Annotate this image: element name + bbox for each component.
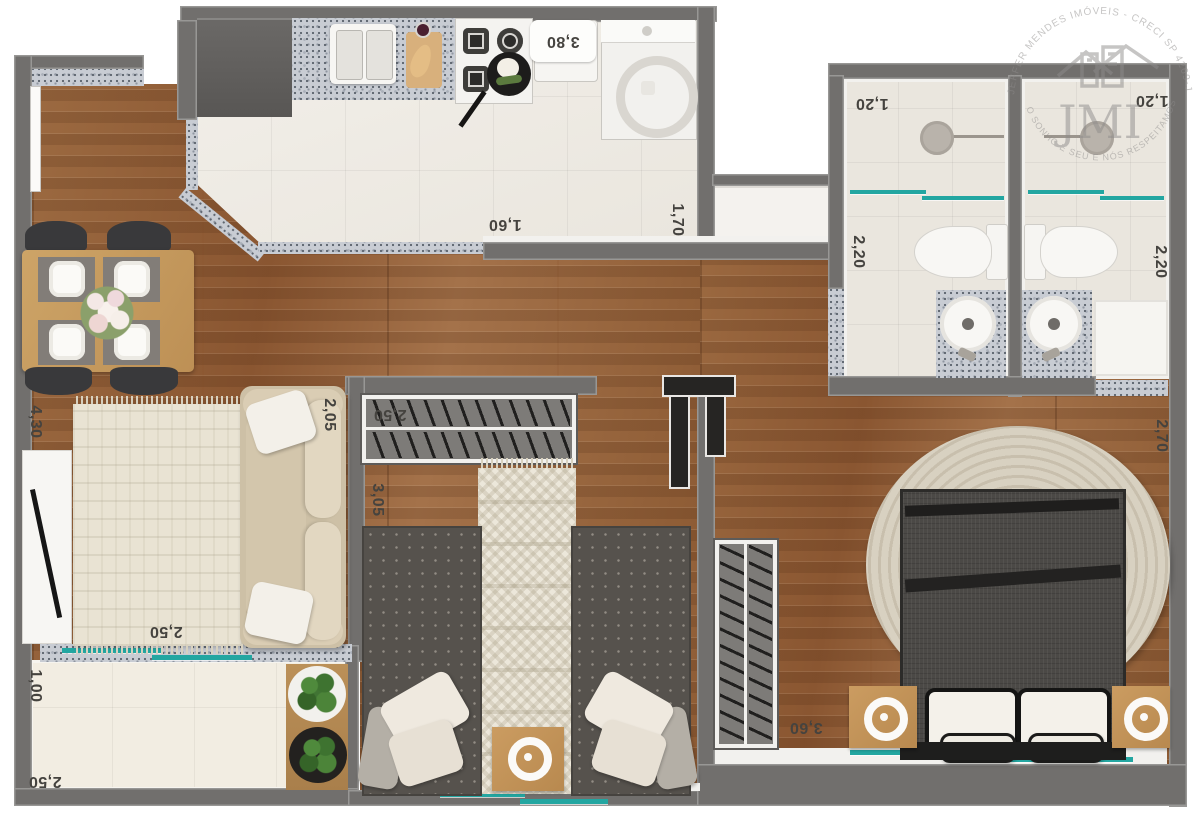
dim-bedroom2-closet-width: 2,50 [364, 403, 416, 425]
dim-living-width: 2,50 [140, 620, 192, 642]
dim-bath2-depth: 2,20 [1149, 236, 1171, 288]
dim-balcony-width: 2,50 [19, 770, 71, 792]
jmi-watermark: JEFFER MENDES IMÓVEIS - CRECI SP 4269-J … [1000, 2, 1200, 177]
dining-chair [107, 221, 171, 253]
wall-fridge-nook [177, 20, 197, 120]
washer-drum [616, 56, 698, 138]
watermark-brand: JMI [1054, 95, 1142, 149]
wine-glass [417, 24, 429, 36]
shower-glass [850, 190, 926, 194]
living-rug [73, 404, 243, 646]
burner [463, 66, 489, 92]
dim-bedroom2-depth: 3,05 [366, 474, 388, 526]
dim-living-length: 4,30 [24, 396, 46, 448]
bathroom2-door-threshold [1094, 380, 1168, 396]
living-balcony-window [152, 655, 252, 660]
sink-drain [1048, 318, 1060, 330]
closet-hanging-clothes [368, 432, 570, 458]
burner [497, 28, 523, 54]
sofa-back-cushion [305, 522, 341, 640]
watermark-arc-top: JEFFER MENDES IMÓVEIS - CRECI SP 4269-J [1006, 4, 1193, 95]
kitchen-edge-left [186, 116, 198, 190]
toilet-bowl [914, 226, 992, 278]
dim-service-depth: 1,70 [666, 194, 688, 246]
living-rug-fringe [73, 644, 243, 654]
dining-chair [25, 367, 92, 395]
dim-kitchen-width: 3,80 [537, 30, 589, 52]
plate [49, 324, 85, 360]
building-icon [1058, 46, 1158, 86]
kitchen-sink-basin [366, 30, 393, 80]
wardrobe-hanging-clothes [749, 545, 772, 743]
wall-kitchen-bottom [483, 242, 840, 260]
fridge-cabinet [197, 18, 292, 117]
wall-shaft-top [712, 174, 838, 186]
washer-drum-center [641, 81, 655, 95]
sink-drain [962, 318, 974, 330]
plant-foliage [293, 731, 343, 779]
dim-balcony-depth: 1,00 [24, 660, 46, 712]
shower-glass [1100, 196, 1164, 200]
bedroom-door-jamb [664, 377, 734, 395]
kitchen-edge-bottom [258, 242, 486, 254]
table-clock-center [880, 713, 888, 721]
shower-head [920, 121, 954, 155]
shower-glass [922, 196, 1004, 200]
wardrobe-divider-line [744, 543, 747, 745]
dim-bath1-depth: 2,20 [847, 226, 869, 278]
wall-kitchen-right [697, 6, 715, 258]
plant-foliage [292, 668, 342, 718]
dim-bath1-width: 1,20 [846, 92, 898, 114]
master-door-leaf [707, 397, 724, 455]
wardrobe-hanging-clothes [720, 545, 744, 743]
wall-bathroom1-left [828, 75, 844, 289]
bedroom2-door-leaf [671, 397, 688, 487]
svg-text:JEFFER MENDES IMÓVEIS - CRECI: JEFFER MENDES IMÓVEIS - CRECI SP 4269-J [1006, 4, 1193, 95]
bathroom2-ledge [1094, 300, 1168, 376]
wall-entry-top [14, 55, 144, 69]
flower-centerpiece [78, 284, 136, 342]
floor-plan: 3,80 1,60 1,70 1,20 2,20 1,20 2,20 4,30 … [0, 0, 1200, 814]
wall-bedroom2-top [345, 376, 597, 395]
dim-master-depth: 2,70 [1150, 410, 1172, 462]
table-clock-center [524, 753, 532, 761]
shower-arm [950, 135, 1004, 138]
bathroom1-door-threshold [828, 287, 844, 377]
dim-master-closet-width: 3,60 [780, 716, 832, 738]
closet-shelf-line [365, 427, 573, 430]
entry-door [30, 86, 41, 192]
plate [49, 261, 85, 297]
burner [463, 28, 489, 54]
wall-master-bottom [697, 764, 1187, 806]
wall-bathrooms-bottom [828, 376, 1096, 396]
shower-glass [1028, 190, 1104, 194]
toilet-bowl [1040, 226, 1118, 278]
table-clock-center [1140, 713, 1148, 721]
entry-threshold [30, 66, 144, 86]
dim-kitchen-depth: 1,60 [479, 213, 531, 235]
dim-sofa-length: 2,05 [318, 389, 340, 441]
kitchen-sink-basin [336, 30, 363, 80]
headboard [900, 742, 1126, 760]
bedroom2-window [520, 799, 608, 804]
washer-knob [642, 26, 652, 36]
dining-chair [110, 367, 178, 395]
dining-chair [25, 221, 87, 253]
